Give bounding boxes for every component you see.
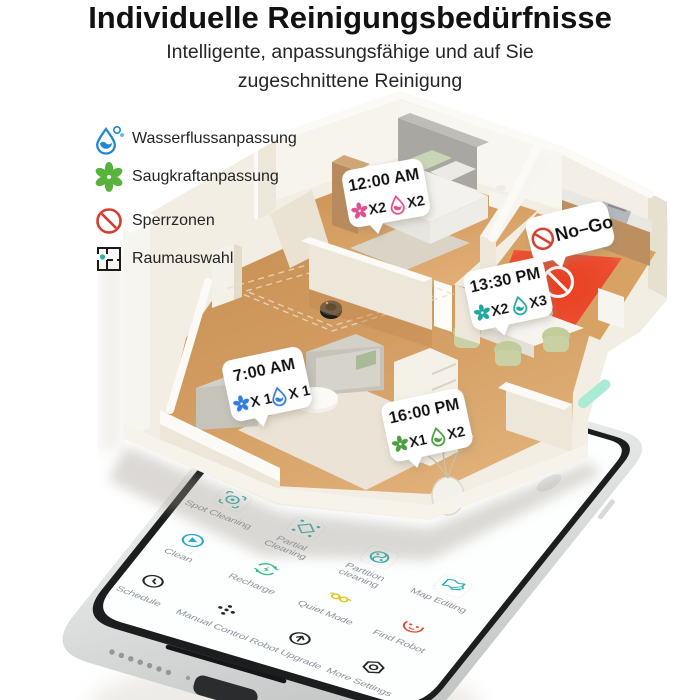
svg-text:X2: X2 xyxy=(406,193,426,212)
svg-text:X2: X2 xyxy=(367,200,387,219)
